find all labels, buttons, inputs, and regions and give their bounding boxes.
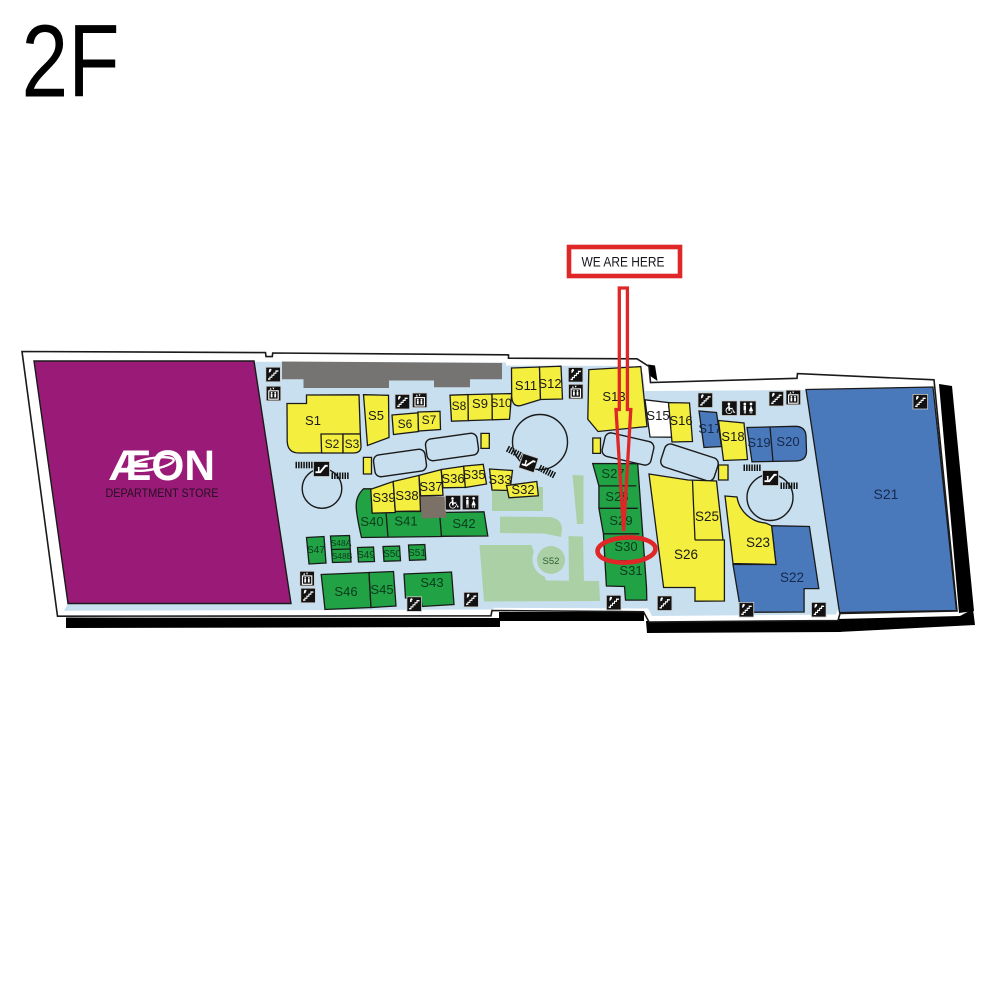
- svg-text:S22: S22: [780, 570, 804, 585]
- svg-text:S13: S13: [602, 389, 625, 404]
- svg-text:S17: S17: [698, 421, 721, 436]
- svg-text:S47: S47: [307, 545, 325, 556]
- svg-text:WE ARE HERE: WE ARE HERE: [582, 255, 665, 270]
- svg-text:S6: S6: [398, 417, 413, 431]
- svg-text:S41: S41: [394, 514, 417, 529]
- svg-text:S42: S42: [452, 516, 475, 531]
- svg-text:S9: S9: [472, 396, 488, 411]
- svg-text:S25: S25: [695, 509, 719, 524]
- svg-text:S35: S35: [462, 467, 485, 482]
- svg-text:S18: S18: [721, 429, 744, 444]
- svg-text:S2: S2: [325, 437, 340, 451]
- svg-text:2F: 2F: [22, 4, 120, 119]
- svg-text:S12: S12: [538, 376, 561, 391]
- svg-text:S31: S31: [619, 563, 642, 578]
- svg-text:S48A: S48A: [331, 538, 352, 548]
- svg-text:DEPARTMENT STORE: DEPARTMENT STORE: [106, 487, 219, 500]
- svg-text:S1: S1: [305, 413, 321, 428]
- svg-text:S51: S51: [408, 548, 426, 559]
- svg-text:S3: S3: [345, 437, 360, 451]
- svg-text:S5: S5: [368, 408, 384, 423]
- svg-text:S36: S36: [441, 471, 464, 486]
- svg-text:S39: S39: [372, 490, 395, 505]
- svg-text:S16: S16: [669, 413, 692, 428]
- svg-text:S11: S11: [515, 378, 537, 393]
- svg-text:S52: S52: [543, 556, 560, 567]
- svg-text:S46: S46: [334, 584, 357, 599]
- svg-text:S40: S40: [360, 514, 383, 529]
- svg-text:S23: S23: [746, 535, 770, 550]
- svg-text:S20: S20: [776, 434, 799, 449]
- svg-text:S50: S50: [383, 549, 401, 560]
- svg-text:S7: S7: [422, 413, 437, 427]
- svg-text:S48B: S48B: [332, 551, 353, 561]
- svg-text:S38: S38: [395, 488, 418, 503]
- svg-text:S43: S43: [420, 575, 443, 590]
- svg-text:S26: S26: [674, 547, 698, 562]
- svg-text:S8: S8: [452, 399, 467, 413]
- svg-text:S30: S30: [614, 539, 637, 554]
- svg-text:S19: S19: [747, 435, 770, 450]
- svg-text:S32: S32: [511, 482, 534, 497]
- svg-text:S37: S37: [419, 479, 442, 494]
- svg-text:S15: S15: [646, 408, 669, 423]
- svg-text:S10: S10: [490, 396, 512, 410]
- svg-text:S21: S21: [874, 486, 899, 502]
- svg-text:S49: S49: [357, 550, 375, 561]
- svg-text:S45: S45: [370, 582, 393, 597]
